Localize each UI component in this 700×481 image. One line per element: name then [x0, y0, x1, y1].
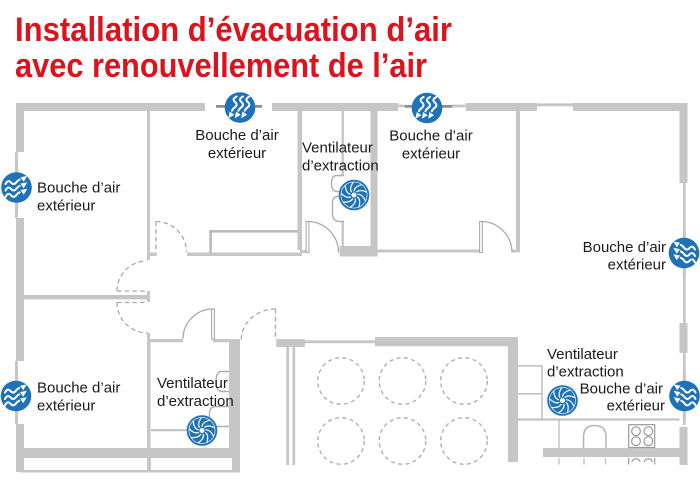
svg-text:Bouche d’air: Bouche d’air: [37, 380, 120, 397]
svg-text:Installation d’évacuation d’ai: Installation d’évacuation d’air: [15, 11, 452, 49]
svg-text:Bouche d’air: Bouche d’air: [580, 381, 663, 398]
svg-text:Ventilateur: Ventilateur: [547, 346, 618, 363]
svg-text:Ventilateur: Ventilateur: [302, 140, 373, 157]
svg-text:Bouche d’air: Bouche d’air: [195, 127, 278, 144]
svg-text:extérieur: extérieur: [402, 146, 460, 163]
svg-text:Bouche d’air: Bouche d’air: [37, 180, 120, 197]
svg-text:extérieur: extérieur: [607, 398, 665, 415]
svg-text:extérieur: extérieur: [608, 257, 666, 274]
svg-text:extérieur: extérieur: [37, 398, 95, 415]
svg-text:Ventilateur: Ventilateur: [157, 375, 228, 392]
svg-text:d’extraction: d’extraction: [302, 158, 379, 175]
svg-text:d’extraction: d’extraction: [157, 393, 234, 410]
svg-text:Bouche d’air: Bouche d’air: [583, 239, 666, 256]
svg-text:d’extraction: d’extraction: [547, 364, 624, 381]
svg-text:extérieur: extérieur: [208, 145, 266, 162]
svg-text:Bouche d’air: Bouche d’air: [389, 128, 472, 145]
svg-text:avec renouvellement de l’air: avec renouvellement de l’air: [15, 47, 427, 85]
svg-text:extérieur: extérieur: [37, 198, 95, 215]
